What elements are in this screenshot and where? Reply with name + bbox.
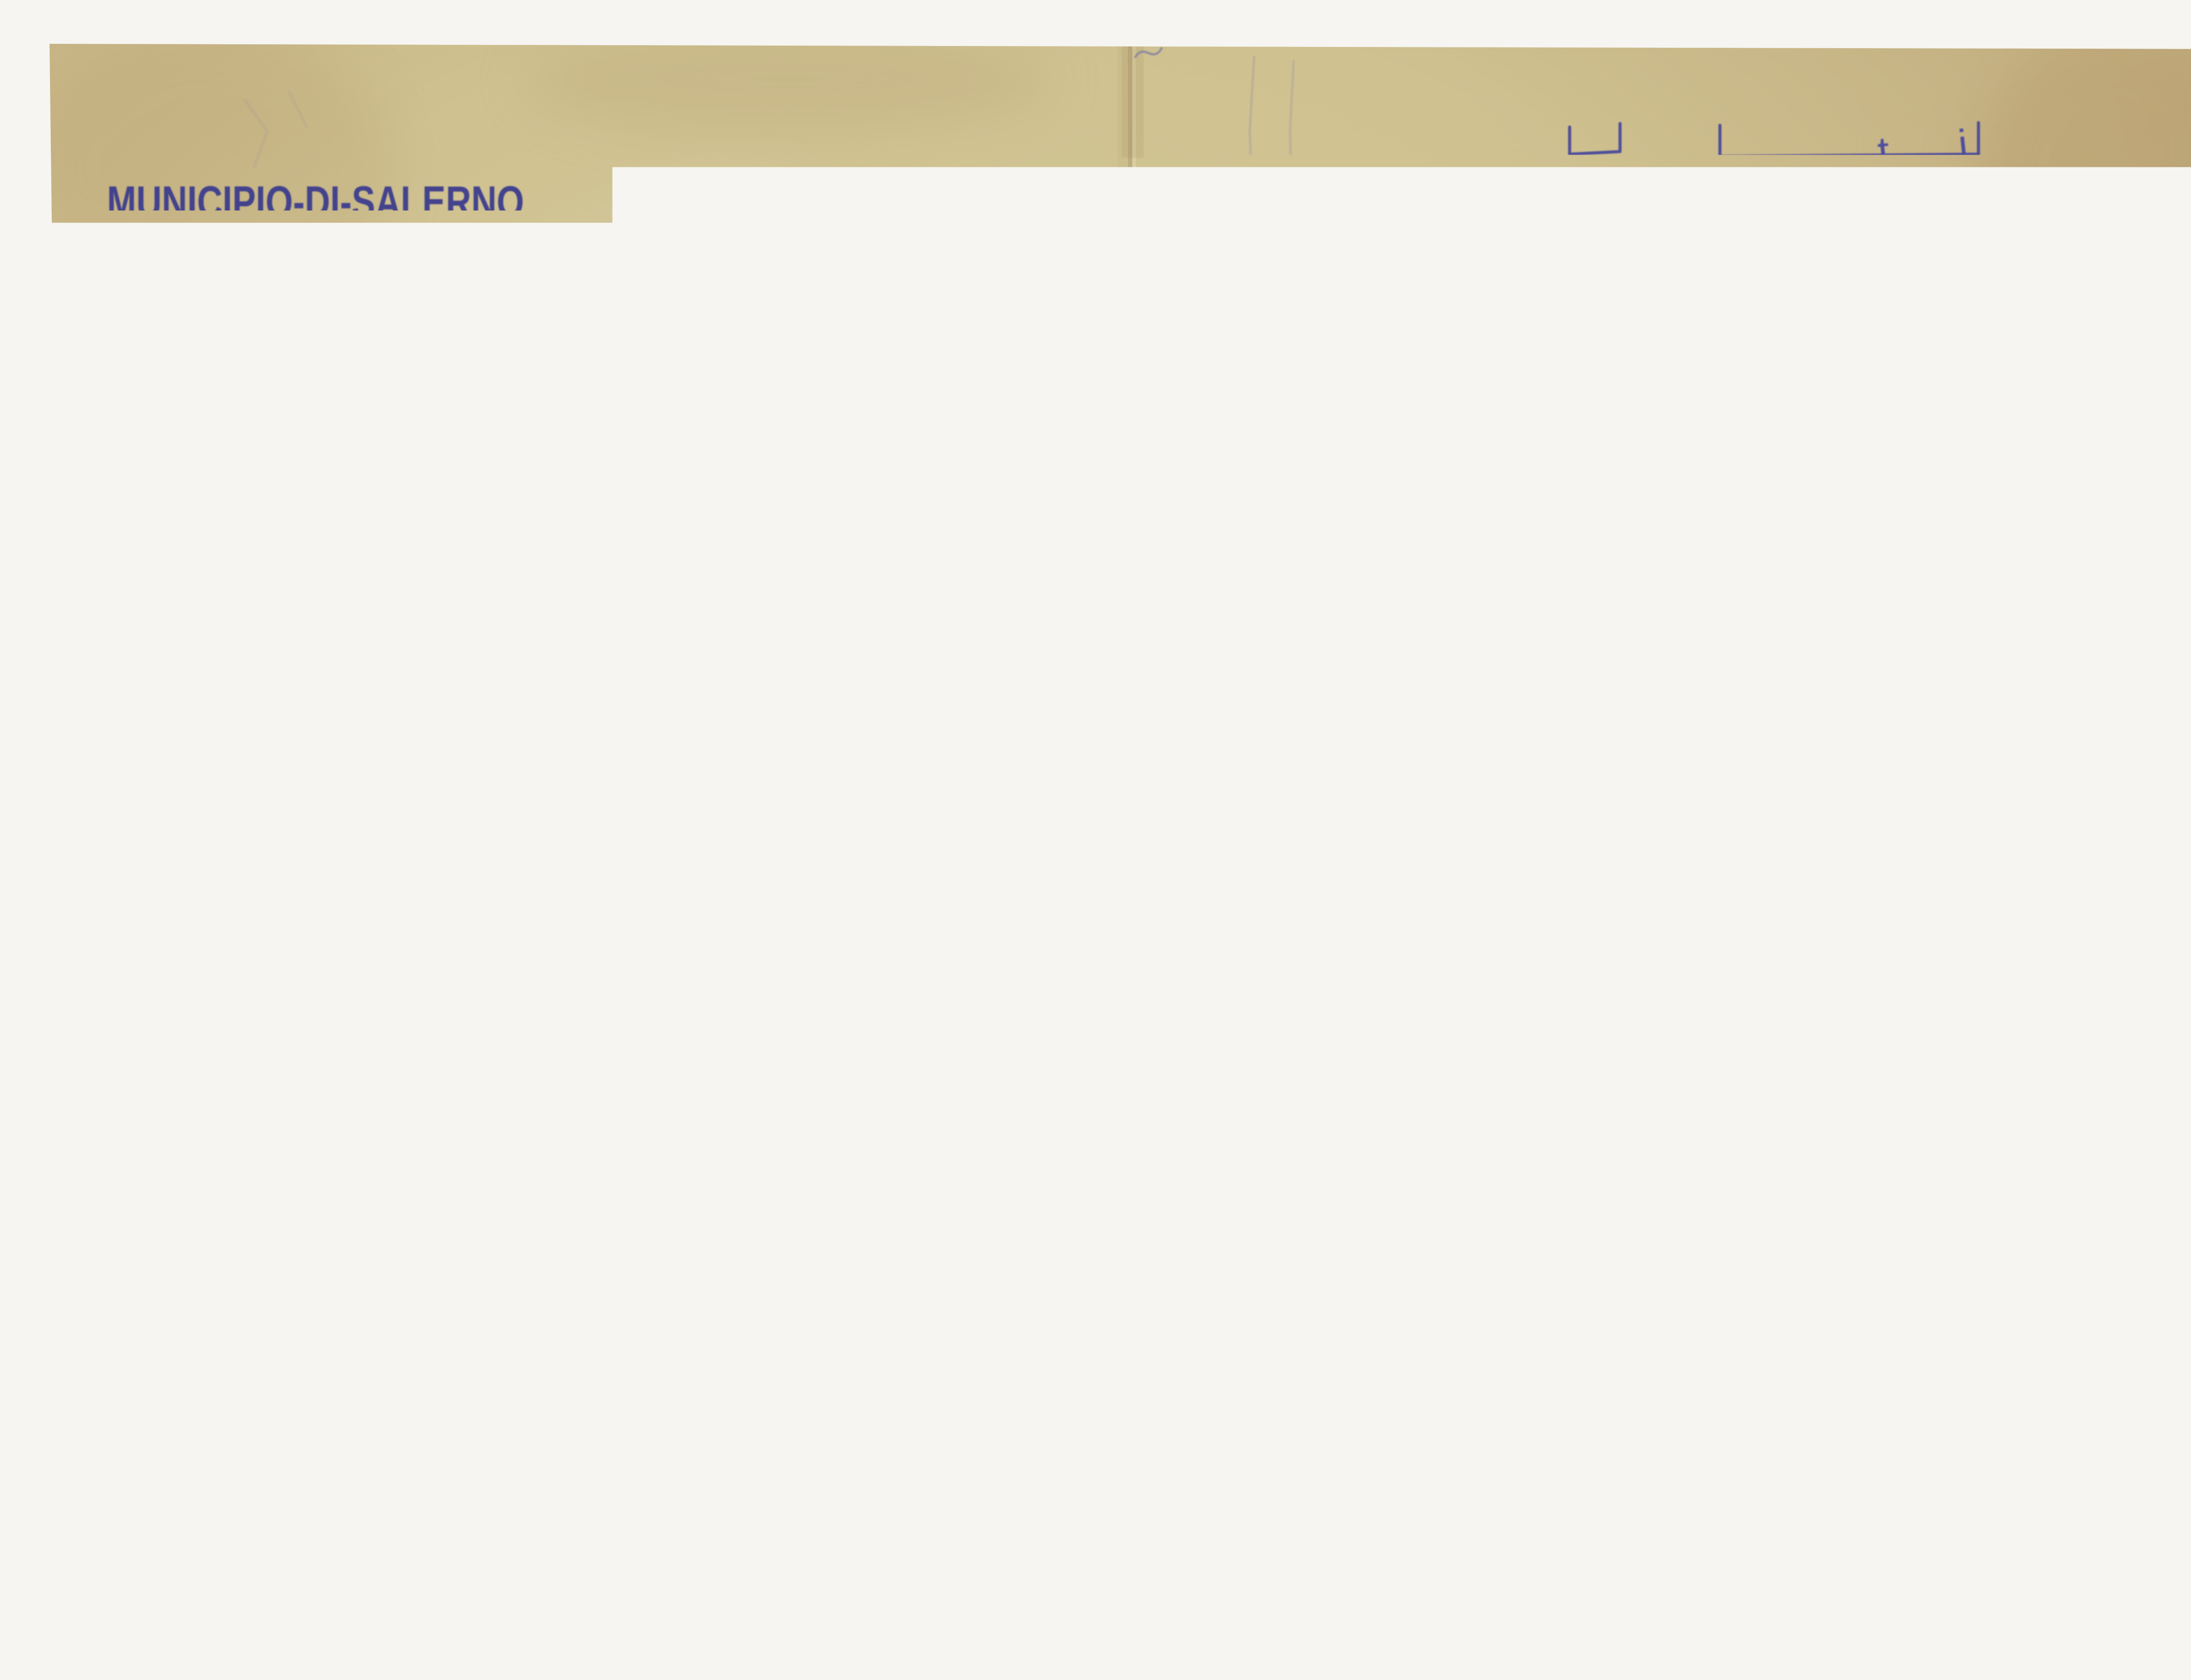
svg-text:a: a bbox=[2025, 1121, 2069, 1144]
svg-text:1718: 1718 bbox=[1720, 1096, 1771, 1124]
svg-text:1195: 1195 bbox=[810, 620, 858, 648]
svg-text:1213: 1213 bbox=[925, 927, 975, 955]
svg-text:1283: 1283 bbox=[1872, 1203, 1922, 1231]
svg-text:U: U bbox=[1150, 1069, 1167, 1094]
svg-text:I: I bbox=[1128, 1069, 1134, 1095]
svg-text:1253: 1253 bbox=[1929, 221, 1971, 244]
svg-text:1208: 1208 bbox=[752, 925, 802, 953]
svg-text:FABBRICATI DI/TRUTTI: FABBRICATI DI/TRUTTI bbox=[287, 1372, 574, 1397]
svg-text:1289: 1289 bbox=[1943, 1297, 1993, 1325]
svg-text:1245: 1245 bbox=[1667, 322, 1712, 347]
svg-text:A: A bbox=[1246, 755, 1259, 776]
svg-text:1234: 1234 bbox=[1516, 731, 1566, 759]
svg-text:1255: 1255 bbox=[1865, 335, 1916, 363]
svg-text:„: „ bbox=[162, 749, 169, 772]
svg-text:1235: 1235 bbox=[1511, 672, 1562, 700]
svg-text:NUOVO ALLINEAMENTO: NUOVO ALLINEAMENTO bbox=[285, 1585, 583, 1611]
svg-text:a: a bbox=[1130, 1457, 1157, 1508]
svg-text:1197: 1197 bbox=[1125, 640, 1175, 668]
svg-text:1263: 1263 bbox=[1917, 582, 1968, 610]
svg-text:1284: 1284 bbox=[1880, 1088, 1924, 1113]
svg-text:„: „ bbox=[397, 726, 403, 749]
svg-text:o: o bbox=[1493, 1417, 1519, 1468]
svg-text:G: G bbox=[1095, 1070, 1113, 1095]
svg-text:„: „ bbox=[289, 726, 296, 749]
svg-text:1219: 1219 bbox=[1227, 1025, 1277, 1053]
svg-text:O: O bbox=[1537, 1325, 1558, 1341]
svg-text:DOGANA R.: DOGANA R. bbox=[396, 747, 501, 770]
svg-text:G: G bbox=[1270, 754, 1285, 775]
svg-text:„: „ bbox=[506, 726, 513, 749]
svg-text:1287: 1287 bbox=[1943, 1181, 1994, 1209]
svg-text:C: C bbox=[1125, 965, 1150, 983]
svg-text:1270: 1270 bbox=[1719, 905, 1763, 930]
svg-text:1266: 1266 bbox=[1914, 725, 1965, 753]
svg-text:1247: 1247 bbox=[1647, 209, 1690, 233]
svg-text:1244: 1244 bbox=[1664, 391, 1711, 417]
svg-text:1281: 1281 bbox=[1790, 1299, 1840, 1327]
svg-text:1198: 1198 bbox=[1143, 706, 1191, 733]
svg-text:V: V bbox=[2034, 1316, 2078, 1343]
svg-text:O: O bbox=[1235, 776, 1260, 795]
svg-text:1276: 1276 bbox=[1752, 1045, 1797, 1070]
svg-text:1260: 1260 bbox=[1903, 456, 1943, 477]
svg-text:1218: 1218 bbox=[1164, 1017, 1215, 1045]
svg-text:a: a bbox=[2011, 734, 2055, 756]
svg-text:1248: 1248 bbox=[1557, 399, 1608, 427]
svg-text:n: n bbox=[2009, 639, 2053, 661]
svg-text:1205: 1205 bbox=[822, 850, 872, 878]
svg-text:1269: 1269 bbox=[1820, 891, 1871, 919]
svg-text:PIANO di RICOSTRUZIONE: PIANO di RICOSTRUZIONE bbox=[81, 339, 542, 374]
svg-text:1254: 1254 bbox=[1928, 269, 1972, 293]
svg-text:S: S bbox=[257, 932, 280, 971]
svg-text:1200: 1200 bbox=[1035, 734, 1074, 755]
svg-text:R.: R. bbox=[2010, 264, 2056, 306]
svg-text:1288: 1288 bbox=[1941, 1237, 1986, 1262]
svg-text:- stralcio zona - A: - stralcio zona - A bbox=[139, 610, 500, 649]
svg-text:Scala-1:500: Scala-1:500 bbox=[390, 1181, 606, 1224]
svg-text:1228: 1228 bbox=[1172, 924, 1223, 952]
svg-text:1229: 1229 bbox=[1139, 866, 1187, 892]
svg-text:O: O bbox=[1229, 716, 1254, 735]
svg-text:1214: 1214 bbox=[1019, 879, 1070, 907]
svg-text:1237: 1237 bbox=[1214, 325, 1266, 354]
svg-text:LIMITATA DALLA VIA MERCANTI A: LIMITATA DALLA VIA MERCANTI A N: bbox=[112, 697, 490, 719]
svg-text:„: „ bbox=[289, 749, 296, 772]
svg-text:„: „ bbox=[359, 1420, 367, 1447]
svg-text:1265: 1265 bbox=[1921, 675, 1971, 703]
svg-text:1203: 1203 bbox=[792, 723, 842, 751]
svg-text:1267: 1267 bbox=[1837, 792, 1889, 821]
svg-text:C: C bbox=[1537, 1257, 1558, 1273]
svg-text:„: „ bbox=[162, 726, 169, 749]
svg-text:1264: 1264 bbox=[1868, 634, 1918, 662]
svg-text:1246: 1246 bbox=[1624, 262, 1675, 290]
svg-text:O: O bbox=[1420, 749, 1435, 770]
svg-text:A: A bbox=[1205, 1068, 1221, 1093]
svg-text:A: A bbox=[953, 1075, 968, 1100]
svg-text:1262: 1262 bbox=[1923, 509, 1974, 538]
svg-text:I: I bbox=[1375, 750, 1380, 772]
svg-text:A: A bbox=[1287, 1067, 1302, 1092]
svg-text:12.1: 12.1 bbox=[1619, 764, 1658, 788]
svg-text:E/J: E/J bbox=[528, 747, 557, 770]
svg-text:1207: 1207 bbox=[867, 890, 918, 918]
svg-text:1274: 1274 bbox=[1704, 1045, 1748, 1070]
svg-text:L' Ing °° Capo´: L' Ing °° Capo´ bbox=[307, 856, 466, 884]
svg-text:1251: 1251 bbox=[1847, 267, 1893, 293]
svg-text:1202: 1202 bbox=[893, 740, 944, 768]
svg-text:1249: 1249 bbox=[1713, 279, 1763, 307]
svg-text:1191: 1191 bbox=[1038, 763, 1086, 790]
svg-text:1256: 1256 bbox=[1755, 333, 1805, 361]
svg-text:„: „ bbox=[162, 771, 169, 794]
svg-text:O.: O. bbox=[526, 770, 547, 793]
svg-text:1276: 1276 bbox=[1647, 1241, 1704, 1273]
svg-text:O: O bbox=[1537, 1280, 1558, 1296]
svg-text:S: S bbox=[1321, 752, 1333, 774]
svg-text:Doc 25: Doc 25 bbox=[2093, 1645, 2167, 1675]
svg-text:O: O bbox=[1295, 753, 1310, 775]
svg-text:a: a bbox=[1600, 156, 1628, 204]
svg-text:D: D bbox=[2020, 1010, 2066, 1040]
svg-text:V: V bbox=[1007, 1475, 1039, 1526]
svg-text:1211: 1211 bbox=[801, 936, 850, 963]
svg-text:a: a bbox=[2006, 544, 2050, 566]
svg-text:1239: 1239 bbox=[1522, 337, 1571, 363]
svg-text:1194: 1194 bbox=[991, 375, 1039, 403]
svg-text:1232: 1232 bbox=[1482, 875, 1532, 903]
svg-text:1212: 1212 bbox=[853, 947, 903, 975]
svg-text:1230: 1230 bbox=[1202, 799, 1252, 827]
svg-text:1815: 1815 bbox=[1583, 212, 1634, 240]
svg-text:304: 304 bbox=[741, 373, 779, 400]
svg-text:1206: 1206 bbox=[773, 892, 823, 920]
svg-text:1261: 1261 bbox=[1820, 489, 1870, 517]
svg-text:„: „ bbox=[412, 1479, 418, 1500]
svg-text:R: R bbox=[1538, 1091, 1559, 1107]
svg-text:„: „ bbox=[289, 771, 296, 794]
svg-text:ROMA: ROMA bbox=[426, 724, 491, 746]
svg-text:1231: 1231 bbox=[1300, 789, 1350, 817]
svg-text:i: i bbox=[2030, 1227, 2074, 1235]
svg-text:1227: 1227 bbox=[1245, 884, 1296, 913]
svg-text:S:: S: bbox=[525, 724, 544, 746]
svg-text:1243: 1243 bbox=[1617, 401, 1668, 429]
svg-text:ALLINEAMENTO SECONDO IL: ALLINEAMENTO SECONDO IL bbox=[285, 1531, 635, 1557]
svg-text:R: R bbox=[1383, 1428, 1417, 1479]
svg-text:I: I bbox=[1237, 1068, 1243, 1093]
svg-text:„: „ bbox=[397, 771, 403, 794]
svg-text:1278: 1278 bbox=[1660, 1111, 1703, 1134]
svg-text:D: D bbox=[1177, 1068, 1194, 1094]
svg-text:1252: 1252 bbox=[1890, 239, 1937, 265]
svg-text:Dott. ARCH.: Dott. ARCH. bbox=[169, 417, 337, 454]
svg-text:a: a bbox=[1698, 1406, 1726, 1456]
svg-text:1272: 1272 bbox=[1660, 842, 1711, 870]
svg-text:T: T bbox=[1347, 751, 1358, 773]
svg-text:V i c o l o: V i c o l o bbox=[741, 689, 863, 716]
svg-text:N: N bbox=[1395, 750, 1409, 771]
svg-text:o: o bbox=[2017, 922, 2060, 944]
svg-text:1778: 1778 bbox=[1932, 311, 1977, 336]
svg-text:1285: 1285 bbox=[1932, 1083, 1982, 1111]
svg-text:1241: 1241 bbox=[1559, 271, 1606, 297]
svg-text:DUOMO: DUOMO bbox=[403, 770, 489, 793]
svg-text:1257: 1257 bbox=[1693, 489, 1744, 517]
svg-text:MUNICIPIO-DI-SALERNO: MUNICIPIO-DI-SALERNO bbox=[107, 177, 524, 227]
svg-text:1204: 1204 bbox=[763, 802, 813, 830]
svg-text:1259: 1259 bbox=[1817, 568, 1867, 596]
svg-text:1236: 1236 bbox=[1376, 606, 1426, 634]
svg-text:1273: 1273 bbox=[1599, 963, 1649, 991]
svg-text:M: M bbox=[1538, 1051, 1559, 1068]
svg-text:1224: 1224 bbox=[1463, 930, 1514, 958]
svg-text:1215: 1215 bbox=[1048, 934, 1098, 962]
svg-text:m: m bbox=[1590, 1413, 1629, 1464]
svg-text:„: „ bbox=[506, 749, 513, 772]
svg-text:1258: 1258 bbox=[1851, 407, 1901, 435]
svg-text:C: C bbox=[1259, 1067, 1276, 1093]
svg-text:1250: 1250 bbox=[1703, 216, 1753, 244]
svg-text:V: V bbox=[902, 1075, 918, 1100]
svg-text:1226: 1226 bbox=[1268, 829, 1318, 857]
svg-text:1222: 1222 bbox=[1485, 973, 1526, 994]
svg-text:1220: 1220 bbox=[1288, 996, 1338, 1024]
svg-text:I: I bbox=[932, 1075, 938, 1100]
svg-text:1233: 1233 bbox=[1481, 806, 1531, 834]
svg-text:1275: 1275 bbox=[1778, 955, 1828, 983]
svg-text:1201: 1201 bbox=[962, 772, 1013, 800]
svg-text:1216: 1216 bbox=[1013, 1006, 1063, 1034]
svg-text:1238: 1238 bbox=[1368, 366, 1419, 394]
svg-text:„: „ bbox=[506, 771, 513, 794]
svg-text:O: O bbox=[1125, 997, 1150, 1016]
svg-text:L A R G O: L A R G O bbox=[1878, 952, 2000, 979]
svg-text:1240: 1240 bbox=[1542, 216, 1588, 242]
svg-text:1225: 1225 bbox=[1304, 911, 1354, 939]
svg-text:1282: 1282 bbox=[1840, 1091, 1884, 1115]
svg-text:12​22: 12​22 bbox=[1399, 1002, 1443, 1027]
svg-text:n: n bbox=[1743, 142, 1771, 191]
svg-text:g: g bbox=[2014, 828, 2058, 850]
